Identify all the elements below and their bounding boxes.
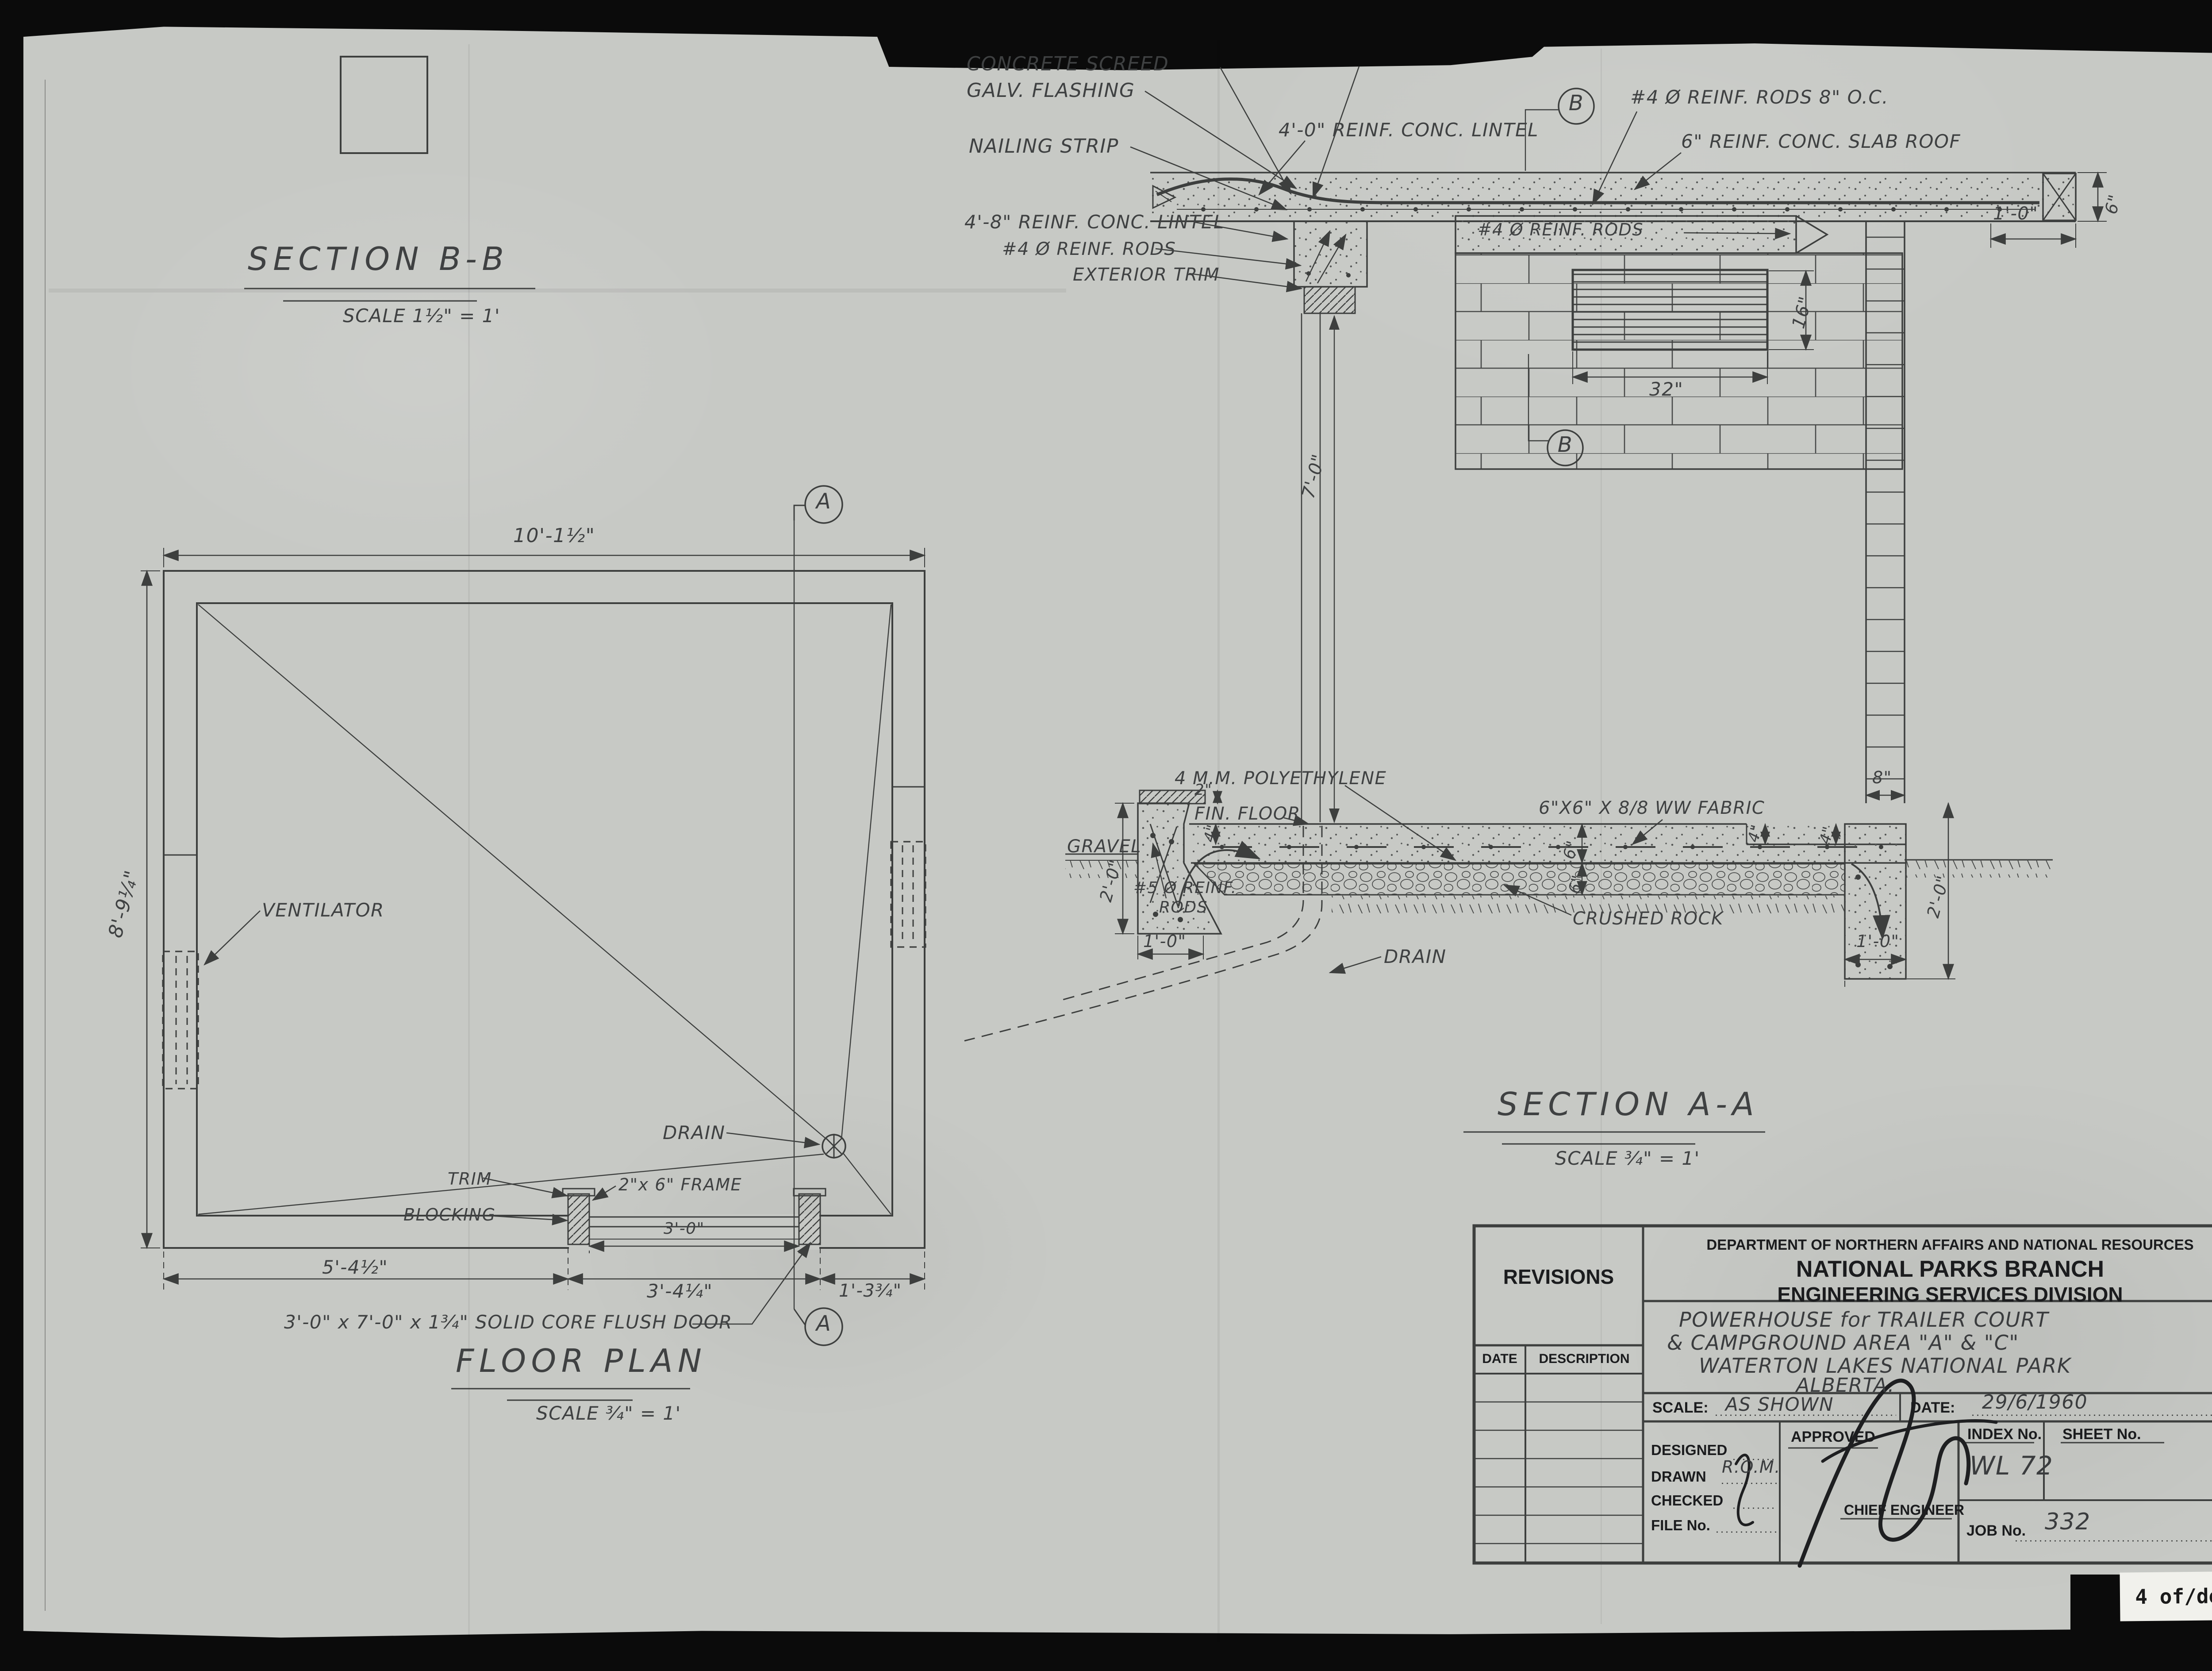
project-title-line3: WATERTON LAKES NATIONAL PARK — [1699, 1355, 2071, 1376]
scale-value: AS SHOWN — [1725, 1395, 1834, 1414]
sheet-no-label: SHEET No. — [2062, 1426, 2141, 1443]
label-rods5-line2: RODS — [1159, 899, 1208, 916]
dim-plan-width: 10'-1½" — [513, 526, 595, 546]
section-bb-scale: SCALE 1½" = 1' — [343, 306, 500, 326]
dim-door-opening: 3'-4¼" — [647, 1282, 713, 1301]
sheet-count-label: 4 of/de 4 — [2120, 1571, 2212, 1621]
dim-width-right: 1'-0" — [1856, 933, 1900, 951]
label-lintel-4-0: 4'-0" REINF. CONC. LINTEL — [1279, 120, 1539, 140]
scanned-blueprint-page: SECTION B-B SCALE 1½" = 1' CONCRETE SCRE… — [0, 0, 2212, 1671]
label-fin-floor: FIN. FLOOR — [1194, 805, 1301, 823]
dim-sill: 2" — [1194, 782, 1212, 798]
label-crushed-rock: CRUSHED ROCK — [1573, 909, 1724, 928]
label-rods-8-oc: #4 Ø REINF. RODS 8" O.C. — [1630, 88, 1889, 107]
approved-label: APPROVED — [1791, 1428, 1875, 1446]
org-line3: ENGINEERING SERVICES DIVISION — [1643, 1282, 2212, 1306]
dim-louver-width: 32" — [1649, 380, 1683, 399]
label-ventilator: VENTILATOR — [262, 901, 384, 920]
drawn-value: R.O.M. — [1722, 1459, 1781, 1476]
index-no-value: WL 72 — [1970, 1452, 2053, 1479]
label-exterior-trim: EXTERIOR TRIM — [1073, 266, 1220, 284]
label-blocking: BLOCKING — [403, 1206, 496, 1224]
label-reinf-rods: #4 Ø REINF. RODS — [1002, 240, 1176, 258]
project-title-line4: ALBERTA. — [1796, 1375, 1895, 1396]
floor-plan-linework — [141, 486, 926, 1345]
checked-label: CHECKED — [1651, 1492, 1723, 1509]
project-title-line2: & CAMPGROUND AREA "A" & "C" — [1667, 1332, 2019, 1353]
floor-plan-title: FLOOR PLAN — [456, 1344, 707, 1378]
org-line2: NATIONAL PARKS BRANCH — [1643, 1256, 2212, 1282]
date-label: DATE: — [1910, 1399, 1955, 1417]
note-flush-door: 3'-0" x 7'-0" x 1¾" SOLID CORE FLUSH DOO… — [284, 1313, 733, 1332]
label-gravel: GRAVEL — [1067, 837, 1141, 856]
job-no-label: JOB No. — [1966, 1522, 2026, 1540]
dim-roof-overhang: 1'-0" — [1993, 204, 2038, 223]
label-concrete-screed: CONCRETE SCREED — [967, 54, 1169, 74]
label-slab-roof: 6" REINF. CONC. SLAB ROOF — [1681, 132, 1961, 151]
label-lintel-4-8: 4'-8" REINF. CONC. LINTEL — [964, 212, 1225, 232]
label-drain-plan: DRAIN — [663, 1123, 726, 1143]
revisions-description-col: DESCRIPTION — [1525, 1351, 1643, 1367]
dim-door-clear: 3'-0" — [664, 1221, 705, 1237]
designed-label: DESIGNED — [1651, 1442, 1727, 1459]
revisions-date-col: DATE — [1474, 1351, 1525, 1367]
section-aa-linework — [964, 785, 2053, 1041]
date-value: 29/6/1960 — [1982, 1392, 2088, 1413]
dim-width-left: 1'-0" — [1143, 933, 1187, 951]
label-nailing-strip: NAILING STRIP — [969, 136, 1119, 157]
label-galv-flashing: GALV. FLASHING — [967, 81, 1135, 101]
project-title-line1: POWERHOUSE for TRAILER COURT — [1679, 1309, 2049, 1330]
org-line1: DEPARTMENT OF NORTHERN AFFAIRS AND NATIO… — [1643, 1236, 2212, 1253]
section-marker-b-bottom: B — [1552, 434, 1578, 456]
label-rods5-line1: #5 Ø REINF. — [1133, 880, 1237, 897]
section-marker-a-top: A — [810, 490, 837, 512]
dim-door-left: 5'-4½" — [322, 1258, 388, 1277]
label-rods-wall: #4 Ø REINF. RODS — [1478, 221, 1644, 239]
label-door-frame: 2"x 6" FRAME — [618, 1176, 742, 1194]
scale-label: SCALE: — [1652, 1399, 1709, 1417]
section-marker-b-top: B — [1563, 92, 1590, 114]
drawn-label: DRAWN — [1651, 1468, 1706, 1485]
section-aa-title: SECTION A-A — [1498, 1088, 1759, 1121]
floor-plan-scale: SCALE ¾" = 1' — [536, 1404, 681, 1423]
file-no-label: FILE No. — [1651, 1517, 1710, 1534]
section-aa-scale: SCALE ¾" = 1' — [1555, 1149, 1700, 1168]
dim-stem-8: 8" — [1872, 769, 1892, 787]
label-trim: TRIM — [448, 1170, 492, 1188]
label-ww-fabric: 6"X6" X 8/8 WW FABRIC — [1539, 799, 1765, 817]
section-bb-title: SECTION B-B — [248, 243, 509, 276]
revisions-header: REVISIONS — [1474, 1265, 1643, 1289]
chief-engineer-label: CHIEF ENGINEER — [1844, 1502, 1964, 1518]
section-marker-a-bottom: A — [810, 1313, 837, 1335]
sheet-count-text: 4 of/de 4 — [2135, 1584, 2212, 1609]
label-drain-aa: DRAIN — [1384, 947, 1447, 966]
dim-door-right: 1'-3¾" — [839, 1282, 902, 1300]
index-no-label: INDEX No. — [1967, 1426, 2042, 1443]
job-no-value: 332 — [2045, 1510, 2091, 1534]
section-bb-linework — [1130, 66, 2107, 822]
